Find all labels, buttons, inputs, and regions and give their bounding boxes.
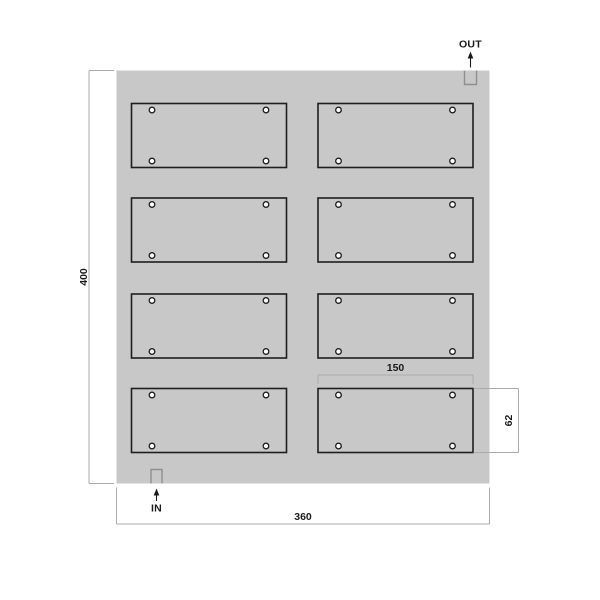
panel-cutout (132, 389, 287, 453)
panel-cutout (132, 104, 287, 168)
dimension-label-400: 400 (78, 268, 90, 286)
screw-hole (450, 349, 456, 355)
screw-hole (149, 392, 155, 398)
screw-hole (149, 158, 155, 164)
out-port-label: OUT (459, 39, 482, 51)
panel-cutout (318, 294, 473, 358)
screw-hole (450, 202, 456, 208)
technical-drawing-canvas: 400 360 150 62 OUT IN (0, 0, 600, 600)
screw-hole (149, 107, 155, 113)
dimension-plate-width: 360 (117, 488, 490, 525)
screw-hole (149, 253, 155, 259)
screw-hole (149, 202, 155, 208)
screw-hole (450, 158, 456, 164)
out-port-notch (465, 71, 477, 85)
panel-cutout (318, 104, 473, 168)
dimension-plate-height: 400 (78, 71, 114, 484)
screw-hole (450, 107, 456, 113)
screw-hole (336, 349, 342, 355)
dimension-label-360: 360 (294, 511, 312, 523)
screw-hole (263, 202, 269, 208)
dimension-label-150: 150 (387, 362, 405, 374)
panel-cutout (318, 389, 473, 453)
screw-hole (263, 443, 269, 449)
screw-hole (149, 443, 155, 449)
screw-hole (450, 253, 456, 259)
screw-hole (336, 202, 342, 208)
screw-hole (149, 349, 155, 355)
panel-cutout (318, 198, 473, 262)
plate-drawing-svg: 400 360 150 62 OUT IN (0, 0, 600, 600)
screw-hole (263, 107, 269, 113)
screw-hole (336, 298, 342, 304)
screw-hole (336, 392, 342, 398)
in-port-notch (151, 470, 162, 484)
screw-hole (263, 349, 269, 355)
screw-hole (450, 298, 456, 304)
screw-hole (450, 392, 456, 398)
screw-hole (263, 253, 269, 259)
screw-hole (336, 253, 342, 259)
panel-cutout (132, 198, 287, 262)
dimension-label-62: 62 (503, 415, 515, 427)
panel-cutout (132, 294, 287, 358)
screw-hole (336, 443, 342, 449)
screw-hole (263, 392, 269, 398)
out-flow-arrow (468, 52, 474, 68)
screw-hole (450, 443, 456, 449)
screw-hole (336, 158, 342, 164)
screw-hole (336, 107, 342, 113)
in-port-label: IN (151, 503, 162, 515)
screw-hole (149, 298, 155, 304)
screw-hole (263, 298, 269, 304)
in-flow-arrow (154, 489, 160, 502)
screw-hole (263, 158, 269, 164)
